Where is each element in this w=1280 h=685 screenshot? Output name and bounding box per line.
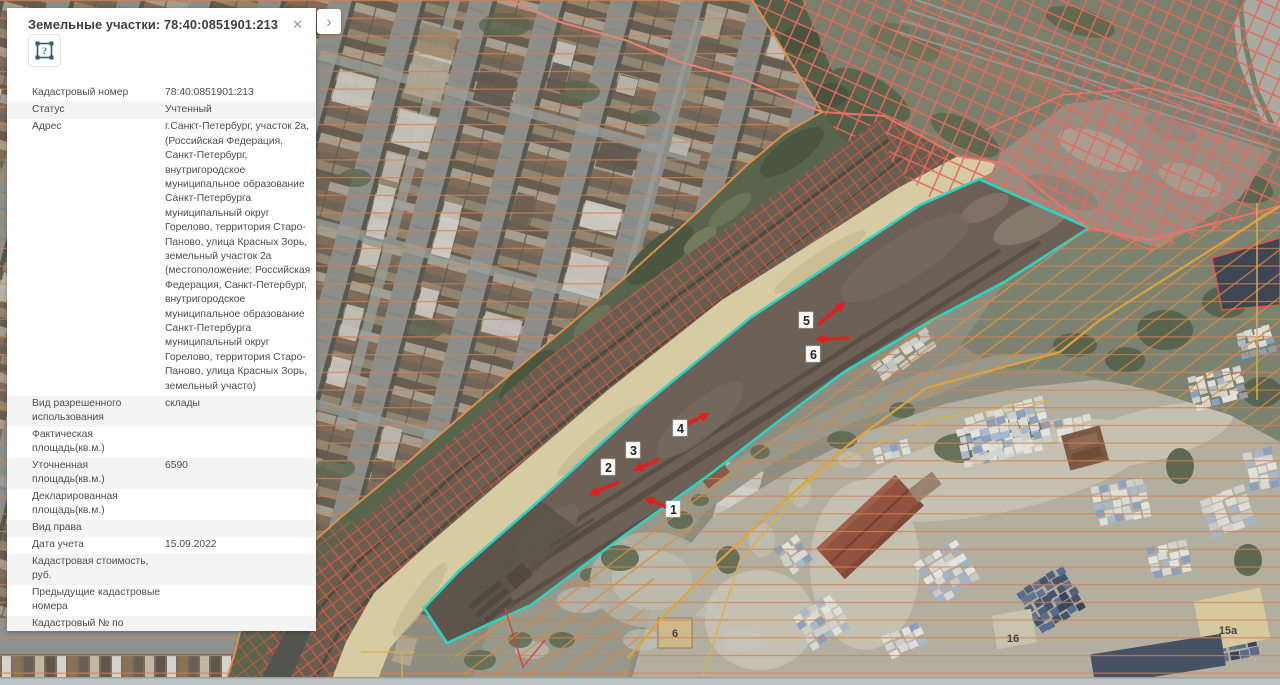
svg-text:2: 2 <box>605 461 612 475</box>
svg-text:5: 5 <box>803 314 810 328</box>
svg-text:15a: 15a <box>1219 625 1238 637</box>
svg-text:6: 6 <box>672 628 678 640</box>
svg-text:3: 3 <box>630 444 637 458</box>
svg-text:16: 16 <box>1007 633 1019 645</box>
svg-text:1: 1 <box>670 503 677 517</box>
svg-text:6: 6 <box>810 348 817 362</box>
svg-text:?: ? <box>42 46 48 58</box>
svg-text:4: 4 <box>677 422 684 436</box>
